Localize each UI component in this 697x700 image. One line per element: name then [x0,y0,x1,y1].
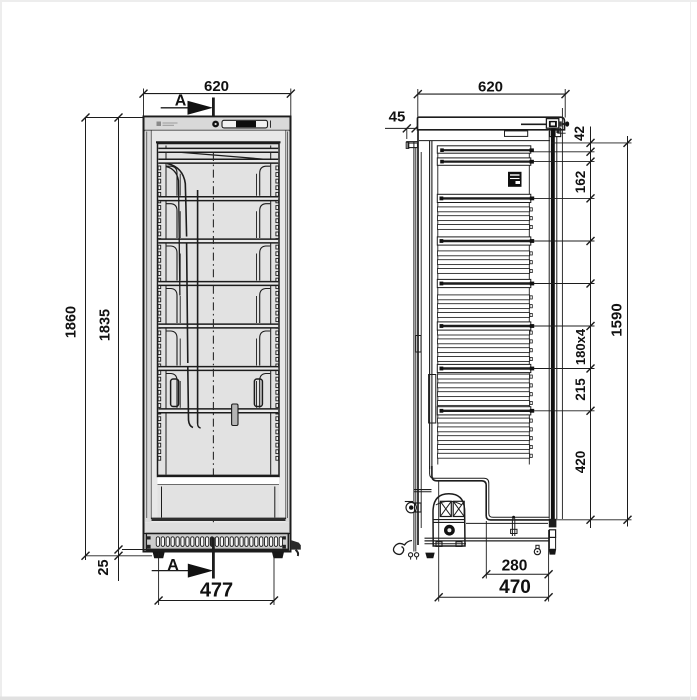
svg-text:42: 42 [572,126,587,141]
svg-text:420: 420 [573,451,588,474]
svg-text:A: A [167,557,179,574]
svg-text:280: 280 [502,557,528,574]
svg-text:215: 215 [573,378,588,401]
svg-text:A: A [175,93,187,110]
svg-text:1590: 1590 [609,303,626,336]
svg-text:477: 477 [200,580,233,602]
svg-text:180x4: 180x4 [573,328,588,365]
svg-text:162: 162 [573,171,588,194]
svg-text:45: 45 [389,109,406,126]
svg-text:470: 470 [499,577,531,598]
svg-text:25: 25 [96,559,112,575]
svg-text:620: 620 [204,78,229,95]
svg-text:1860: 1860 [64,306,80,338]
svg-text:1835: 1835 [98,309,114,341]
svg-text:620: 620 [478,79,503,96]
